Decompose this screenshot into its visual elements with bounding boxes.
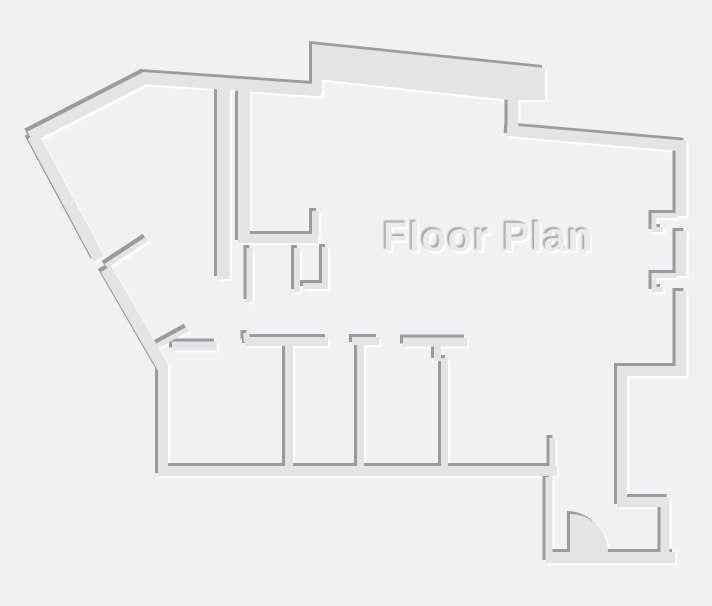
wall-layer (30, 44, 687, 563)
wall-top (143, 78, 321, 91)
floor-plan-drawing: Floor Plan (0, 0, 712, 606)
wall-right-notch-1 (652, 213, 678, 231)
wall-lower-left-diagonal-lower (106, 269, 164, 369)
door-leaf-diagonal-wall (106, 239, 147, 266)
floor-plan-canvas: Floor Plan (0, 0, 712, 606)
door-swing-arc (570, 514, 608, 552)
interior-walls (172, 88, 467, 470)
wall-upper-left-diagonal (30, 77, 147, 137)
plan-title: Floor Plan (383, 214, 593, 260)
wall-lower-left-diagonal-upper (33, 136, 99, 259)
wall-bay (312, 44, 545, 100)
wall-right-notch-2 (652, 273, 678, 291)
exterior-walls (30, 44, 687, 563)
wall-top-right-slant (507, 131, 684, 147)
